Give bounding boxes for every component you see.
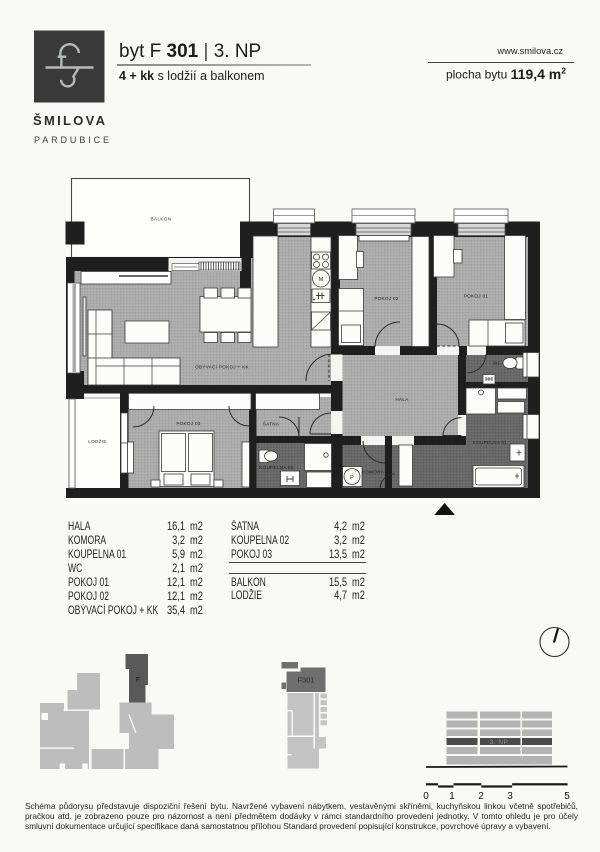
svg-text:M: M xyxy=(319,277,324,283)
svg-text:F: F xyxy=(136,677,140,684)
svg-text:ŠATNA: ŠATNA xyxy=(263,421,280,427)
svg-text:F301: F301 xyxy=(297,676,314,685)
svg-text:WC: WC xyxy=(493,361,502,366)
svg-text:KOUPELNA 02: KOUPELNA 02 xyxy=(259,465,294,470)
svg-text:POKOJ 01: POKOJ 01 xyxy=(464,294,489,299)
svg-text:3. NP: 3. NP xyxy=(490,739,509,746)
svg-text:P: P xyxy=(350,475,354,481)
svg-text:KOMORA: KOMORA xyxy=(362,470,385,475)
svg-text:BALKON: BALKON xyxy=(150,217,171,222)
svg-text:POKOJ 02: POKOJ 02 xyxy=(374,296,399,301)
svg-text:OBÝVACÍ POKOJ + KK: OBÝVACÍ POKOJ + KK xyxy=(195,364,249,370)
svg-text:HALA: HALA xyxy=(395,397,409,402)
svg-text:KOUPELNA 01: KOUPELNA 01 xyxy=(473,440,508,445)
svg-text:LODŽIE: LODŽIE xyxy=(88,437,106,444)
svg-text:POKOJ 03: POKOJ 03 xyxy=(176,421,201,426)
